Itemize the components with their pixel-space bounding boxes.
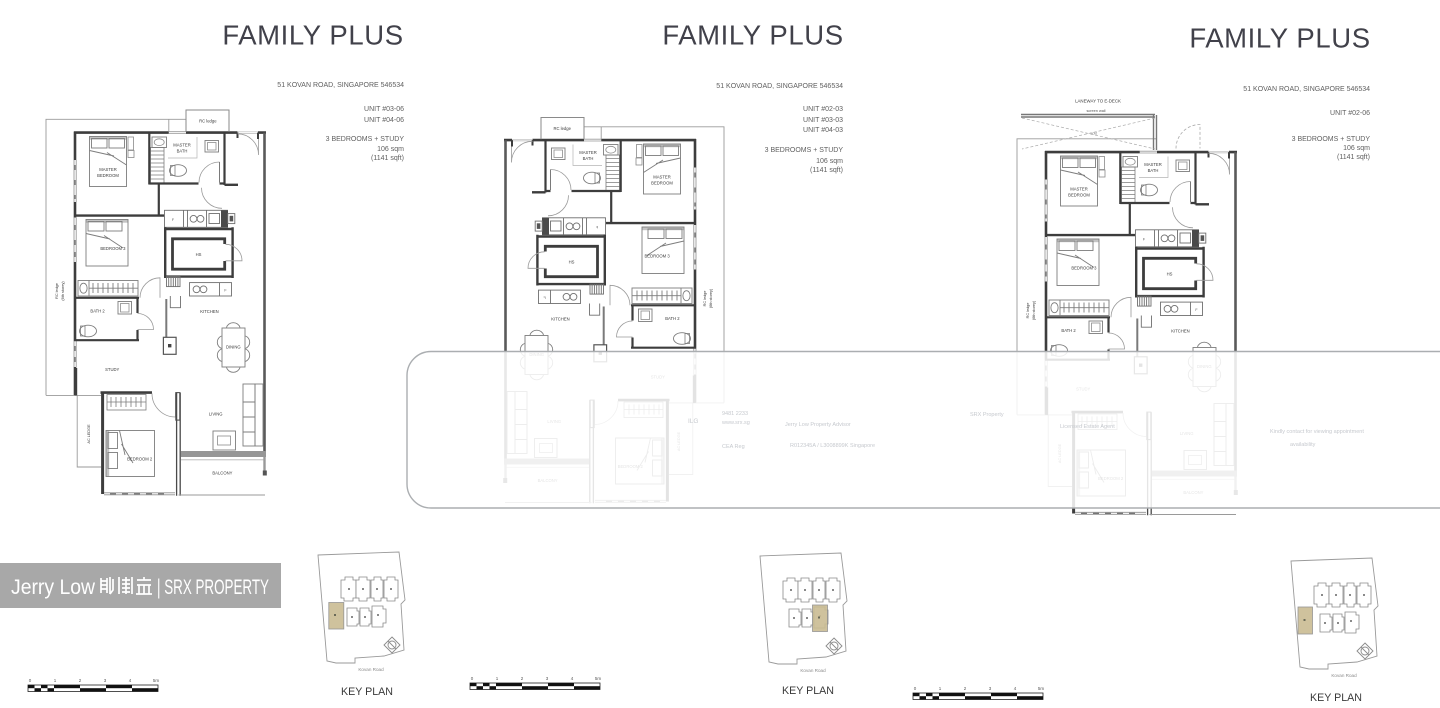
svg-text:MASTER: MASTER [653, 175, 670, 180]
svg-text:(6th storey): (6th storey) [61, 281, 65, 301]
svg-text:UNIT #03-03: UNIT #03-03 [803, 117, 843, 124]
svg-text:ILG: ILG [688, 418, 698, 425]
svg-text:51 KOVAN ROAD, SINGAPORE 54653: 51 KOVAN ROAD, SINGAPORE 546534 [716, 83, 843, 90]
svg-text:FAMILY PLUS: FAMILY PLUS [662, 20, 843, 51]
svg-text:(1141 sqft): (1141 sqft) [810, 167, 843, 174]
svg-text:RC ledge: RC ledge [1026, 303, 1030, 319]
svg-text:DINING: DINING [226, 345, 241, 350]
svg-text:3 BEDROOMS + STUDY: 3 BEDROOMS + STUDY [326, 136, 405, 143]
svg-text:BEDROOM: BEDROOM [1068, 193, 1090, 198]
svg-text:106 sqm: 106 sqm [377, 146, 404, 153]
svg-text:KEY PLAN: KEY PLAN [1310, 692, 1362, 704]
svg-text:RC ledge: RC ledge [55, 283, 59, 299]
svg-text:51 KOVAN ROAD, SINGAPORE 54653: 51 KOVAN ROAD, SINGAPORE 546534 [277, 82, 404, 89]
svg-text:availability: availability [1290, 442, 1316, 448]
svg-text:AC LEDGE: AC LEDGE [87, 424, 91, 444]
svg-text:MASTER: MASTER [1144, 162, 1161, 167]
svg-text:BALCONY: BALCONY [212, 470, 232, 475]
svg-text:| SRX PROPERTY: | SRX PROPERTY [157, 576, 269, 599]
svg-text:MASTER: MASTER [579, 150, 596, 155]
svg-text:BATH: BATH [177, 149, 188, 154]
svg-text:Jerry Low: Jerry Low [11, 576, 96, 599]
svg-text:MASTER: MASTER [99, 167, 116, 172]
svg-text:(1141 sqft): (1141 sqft) [1337, 154, 1370, 161]
svg-text:KITCHEN: KITCHEN [551, 317, 569, 322]
svg-text:KEY PLAN: KEY PLAN [782, 685, 834, 697]
svg-text:Licensed Estate Agent: Licensed Estate Agent [1060, 424, 1115, 430]
svg-text:www.srx.sg: www.srx.sg [721, 420, 750, 426]
svg-text:FAMILY PLUS: FAMILY PLUS [222, 20, 403, 51]
svg-text:BATH: BATH [583, 156, 594, 161]
svg-text:MASTER: MASTER [1070, 187, 1087, 192]
svg-text:Jerry Low Property Advisor: Jerry Low Property Advisor [785, 422, 851, 428]
svg-text:51 KOVAN ROAD, SINGAPORE 54653: 51 KOVAN ROAD, SINGAPORE 546534 [1243, 86, 1370, 93]
svg-text:(6th storey): (6th storey) [709, 288, 713, 308]
svg-text:void: void [1091, 132, 1098, 136]
svg-text:LIVING: LIVING [209, 412, 223, 417]
svg-text:BATH 2: BATH 2 [665, 316, 680, 321]
svg-text:9481 2233: 9481 2233 [722, 411, 748, 417]
svg-text:Kindly contact for viewing app: Kindly contact for viewing appointment [1270, 429, 1364, 435]
svg-text:screen wall: screen wall [1087, 109, 1106, 113]
svg-text:RC ledge: RC ledge [553, 126, 571, 131]
svg-text:BEDROOM 2: BEDROOM 2 [127, 457, 153, 462]
svg-text:UNIT #04-06: UNIT #04-06 [364, 117, 404, 124]
svg-text:RC ledge: RC ledge [703, 291, 707, 307]
svg-text:CEA Reg: CEA Reg [722, 444, 745, 450]
svg-text:STUDY: STUDY [105, 367, 119, 372]
svg-text:3 BEDROOMS + STUDY: 3 BEDROOMS + STUDY [765, 147, 844, 154]
svg-text:MASTER: MASTER [173, 143, 190, 148]
svg-text:BEDROOM: BEDROOM [97, 173, 119, 178]
svg-text:UNIT #03-06: UNIT #03-06 [364, 106, 404, 113]
svg-text:BEDROOM 3: BEDROOM 3 [1071, 266, 1097, 271]
svg-text:3 BEDROOMS + STUDY: 3 BEDROOMS + STUDY [1292, 136, 1371, 143]
svg-text:UNIT #02-03: UNIT #02-03 [803, 106, 843, 113]
svg-text:KITCHEN: KITCHEN [1171, 329, 1189, 334]
svg-text:R012345A / L3008899K Singapore: R012345A / L3008899K Singapore [790, 443, 875, 449]
svg-text:106 sqm: 106 sqm [816, 158, 843, 165]
svg-text:(1141 sqft): (1141 sqft) [371, 155, 404, 162]
svg-text:KITCHEN: KITCHEN [200, 309, 218, 314]
svg-text:FAMILY PLUS: FAMILY PLUS [1189, 23, 1370, 54]
svg-text:106 sqm: 106 sqm [1343, 145, 1370, 152]
svg-text:HS: HS [569, 260, 575, 265]
svg-text:BATH: BATH [1148, 168, 1159, 173]
svg-text:(6th storey): (6th storey) [1032, 300, 1036, 320]
svg-text:SRX Property: SRX Property [970, 412, 1004, 418]
svg-text:BATH 2: BATH 2 [1061, 328, 1076, 333]
svg-text:BEDROOM 3: BEDROOM 3 [645, 254, 671, 259]
svg-text:RC ledge: RC ledge [199, 119, 217, 124]
svg-text:HS: HS [1167, 272, 1173, 277]
svg-text:LANEWAY TO E-DECK: LANEWAY TO E-DECK [1075, 99, 1121, 104]
svg-text:BEDROOM: BEDROOM [651, 181, 673, 186]
svg-text:BEDROOM 3: BEDROOM 3 [100, 246, 126, 251]
svg-text:BATH 2: BATH 2 [90, 309, 105, 314]
svg-text:UNIT #02-06: UNIT #02-06 [1330, 110, 1370, 117]
svg-text:HS: HS [196, 252, 202, 257]
svg-text:UNIT #04-03: UNIT #04-03 [803, 127, 843, 134]
svg-text:KEY PLAN: KEY PLAN [341, 686, 393, 698]
